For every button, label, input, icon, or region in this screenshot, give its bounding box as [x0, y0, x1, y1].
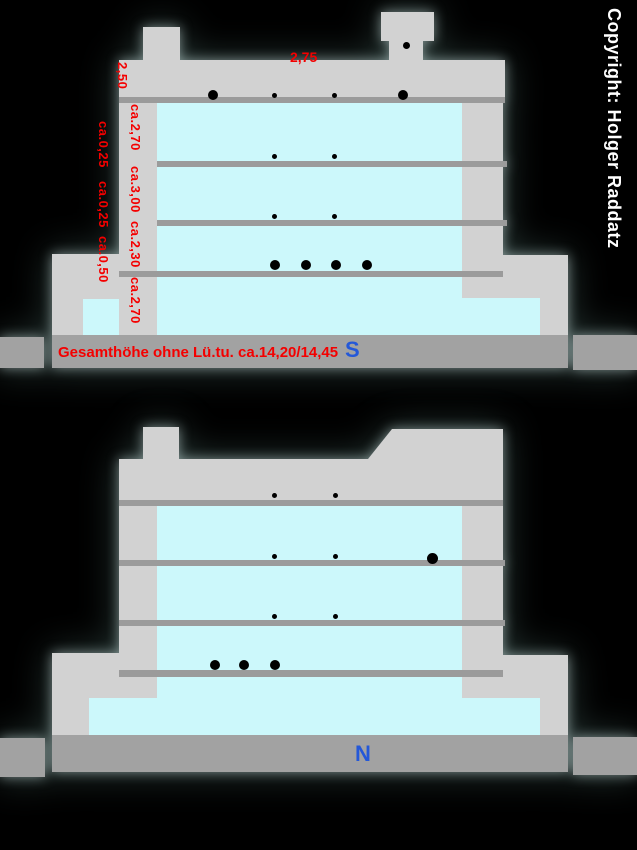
dot: [272, 554, 277, 559]
attic-tall-right-n: [392, 429, 503, 460]
base-stub-right-n: [573, 737, 637, 775]
foundation-step-left-n: [52, 698, 89, 735]
foundation-right-n: [503, 655, 568, 698]
copyright-text: Copyright: Holger Raddatz: [603, 8, 624, 249]
dot: [333, 493, 338, 498]
dot: [333, 554, 338, 559]
dot: [210, 660, 220, 670]
base-plate-n: [52, 735, 568, 772]
diagram-canvas: 2,75 2,50 ca.2,70 ca.3,00 ca.2,30 ca.2,7…: [0, 0, 637, 850]
dot: [239, 660, 249, 670]
ceiling-slab-n: [119, 500, 503, 506]
basement-notch-right-n: [462, 698, 540, 735]
foundation-step-right-n: [540, 698, 568, 735]
dot: [427, 553, 438, 564]
dot: [272, 493, 277, 498]
roof-step-n: [143, 427, 179, 460]
dot: [270, 660, 280, 670]
attic-band-n: [119, 459, 503, 506]
dot: [272, 614, 277, 619]
base-stub-left-n: [0, 738, 45, 777]
dot: [333, 614, 338, 619]
floor-slab-2-n: [119, 560, 505, 566]
compass-label-n: N: [355, 741, 371, 767]
section-n-drawing: [0, 0, 637, 850]
floor-slab-3-n: [119, 620, 505, 626]
foundation-left-n: [52, 653, 119, 699]
roof-slope-n: [368, 429, 392, 459]
basement-notch-left-n: [89, 698, 157, 735]
floor-slab-4-n: [119, 670, 503, 677]
